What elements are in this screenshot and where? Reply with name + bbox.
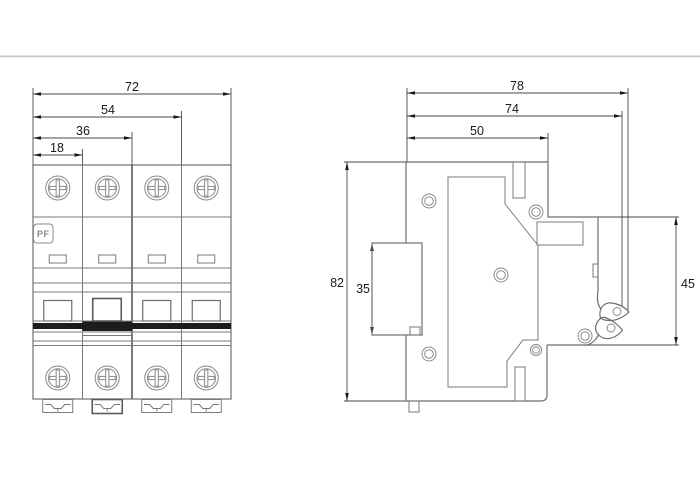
rivet-hole xyxy=(422,347,436,361)
drawing-page: 72 54 36 18 xyxy=(0,0,700,500)
din-rail-recess xyxy=(372,243,422,335)
mounting-slot-bottom xyxy=(515,367,525,401)
indicator-band-pole2 xyxy=(83,322,133,332)
din-clip-tab xyxy=(409,401,419,412)
screw-icon xyxy=(145,366,169,390)
screw-icon xyxy=(194,366,218,390)
dim-label-54: 54 xyxy=(101,103,115,117)
screw-icon xyxy=(194,176,218,200)
clamp-tab xyxy=(142,400,172,413)
front-view: 72 54 36 18 xyxy=(33,80,231,414)
breaker-front-body xyxy=(33,165,231,399)
side-extension-lines xyxy=(344,88,679,401)
toggle-handle xyxy=(192,301,220,322)
side-dimensions: 78 74 50 82 35 45 xyxy=(330,79,695,401)
dim-label-74: 74 xyxy=(505,102,519,116)
clamp-tab xyxy=(191,400,221,413)
dim-label-50: 50 xyxy=(470,124,484,138)
top-divider xyxy=(0,56,700,58)
rivet-hole xyxy=(529,205,543,219)
mounting-slot-top xyxy=(513,162,525,198)
toggle-lever xyxy=(596,303,629,339)
screw-icon xyxy=(95,176,119,200)
brand-logo-text: PF xyxy=(37,229,50,239)
technical-drawing: 72 54 36 18 xyxy=(0,0,700,500)
dim-label-82: 82 xyxy=(330,276,344,290)
screw-icon xyxy=(95,366,119,390)
dim-label-45: 45 xyxy=(681,277,695,291)
toggle-handle xyxy=(44,301,72,322)
inner-contour xyxy=(448,177,538,387)
dim-label-72: 72 xyxy=(125,80,139,94)
rivet-hole xyxy=(578,329,592,343)
clamp-tab xyxy=(43,400,73,413)
side-interior xyxy=(448,162,598,401)
terminal-block xyxy=(537,222,583,245)
brand-logo: PF xyxy=(34,224,54,243)
toggle-handle xyxy=(93,299,122,322)
dim-label-18: 18 xyxy=(50,141,64,155)
screw-icon xyxy=(145,176,169,200)
din-clip-notch xyxy=(410,327,420,335)
screw-icon xyxy=(46,176,70,200)
dim-label-78: 78 xyxy=(510,79,524,93)
rivet-hole xyxy=(494,268,508,282)
rivet-hole xyxy=(531,345,542,356)
terminal-clamp-tabs xyxy=(43,400,222,414)
screw-icon xyxy=(46,366,70,390)
dim-label-35: 35 xyxy=(356,282,370,296)
side-view: 78 74 50 82 35 45 xyxy=(330,79,695,412)
breaker-side-outline xyxy=(372,162,601,412)
front-face-rib xyxy=(593,264,598,277)
dim-label-36: 36 xyxy=(76,124,90,138)
rivet-hole xyxy=(422,194,436,208)
toggle-handle xyxy=(143,301,171,322)
clamp-tab xyxy=(92,400,122,414)
